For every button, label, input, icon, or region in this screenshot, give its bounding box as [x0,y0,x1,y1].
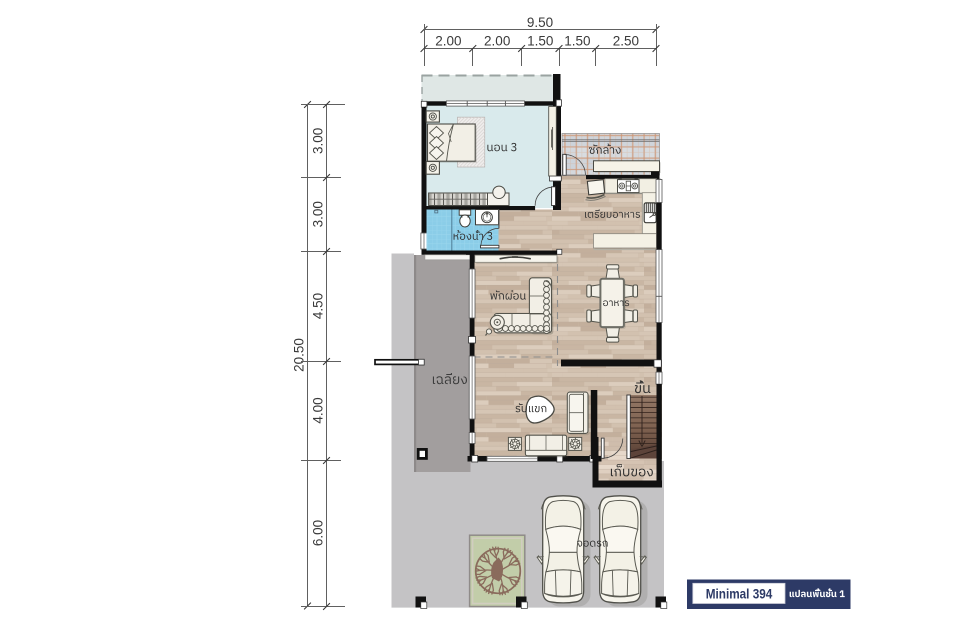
svg-text:6.00: 6.00 [311,520,326,546]
svg-text:20.50: 20.50 [292,338,307,372]
svg-text:3.00: 3.00 [311,201,326,227]
svg-text:9.50: 9.50 [527,15,553,30]
svg-text:4.00: 4.00 [311,397,326,423]
svg-text:2.50: 2.50 [613,34,639,49]
svg-text:2.00: 2.00 [435,34,461,49]
svg-text:3.00: 3.00 [311,128,326,154]
svg-text:2.00: 2.00 [484,34,510,49]
svg-text:1.50: 1.50 [527,34,553,49]
svg-text:1.50: 1.50 [564,34,590,49]
svg-text:Minimal 394: Minimal 394 [706,585,773,601]
svg-text:4.50: 4.50 [311,293,326,319]
